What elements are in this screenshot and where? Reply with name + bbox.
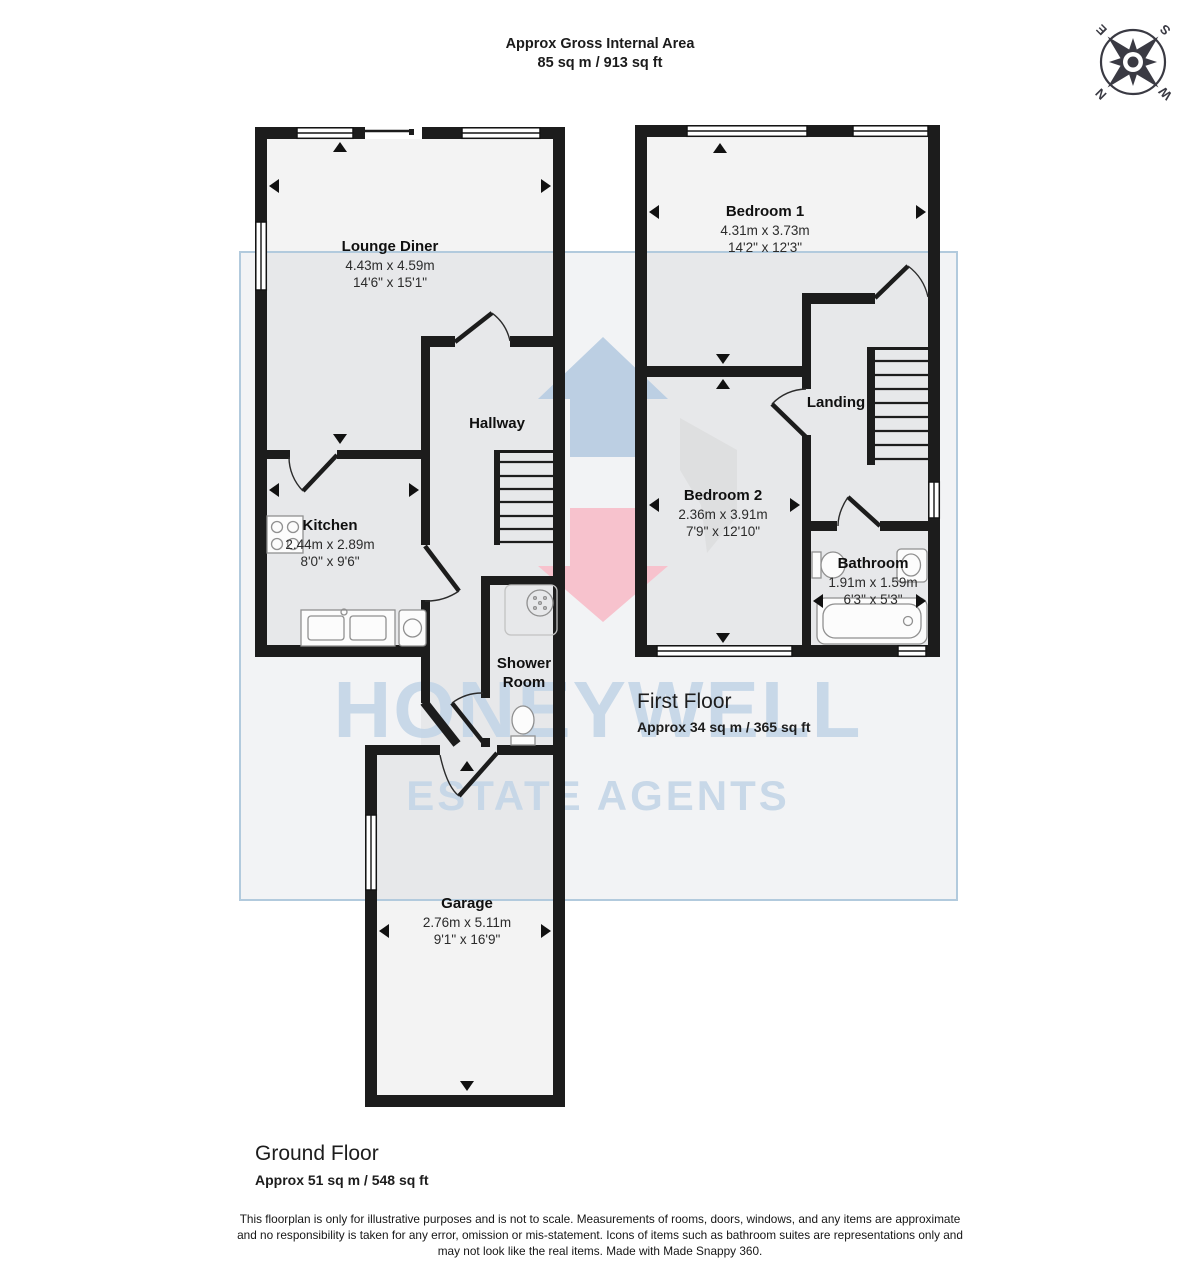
room-label-lounge: Lounge Diner 4.43m x 4.59m 14'6" x 15'1" — [342, 238, 439, 291]
room-label-shower: Shower Room — [482, 655, 566, 693]
compass-n: N — [1092, 86, 1109, 103]
room-name: Bathroom — [828, 555, 917, 574]
room-dim-imperial: 9'1" x 16'9" — [423, 931, 511, 948]
room-name: Hallway — [469, 415, 525, 434]
room-dim-metric: 2.36m x 3.91m — [678, 506, 767, 523]
room-dim-metric: 1.91m x 1.59m — [828, 574, 917, 591]
room-name: Bedroom 2 — [678, 487, 767, 506]
page-title: Approx Gross Internal Area — [506, 36, 695, 52]
compass-e: E — [1093, 21, 1110, 38]
ground-floor-title: Ground Floor — [255, 1142, 379, 1166]
disclaimer-line: and no responsibility is taken for any e… — [237, 1228, 963, 1242]
room-name: Shower Room — [482, 655, 566, 693]
room-label-kitchen: Kitchen 2.44m x 2.89m 8'0" x 9'6" — [285, 517, 374, 570]
room-label-bathroom: Bathroom 1.91m x 1.59m 6'3" x 5'3" — [828, 555, 917, 608]
first-floor-title: First Floor — [637, 690, 732, 714]
disclaimer-line: may not look like the real items. Made w… — [438, 1244, 763, 1258]
watermark-line2: ESTATE AGENTS — [406, 772, 790, 819]
room-dim-imperial: 14'6" x 15'1" — [342, 274, 439, 291]
compass-s: S — [1157, 21, 1174, 38]
compass-w: W — [1155, 83, 1175, 103]
room-label-bedroom1: Bedroom 1 4.31m x 3.73m 14'2" x 12'3" — [720, 203, 809, 256]
ground-floor-area: Approx 51 sq m / 548 sq ft — [255, 1172, 429, 1188]
room-label-garage: Garage 2.76m x 5.11m 9'1" x 16'9" — [423, 895, 511, 948]
room-dim-imperial: 7'9" x 12'10" — [678, 523, 767, 540]
watermark-text: HONEYWELL ESTATE AGENTS — [333, 665, 862, 819]
room-dim-metric: 2.76m x 5.11m — [423, 914, 511, 931]
room-label-landing: Landing — [807, 394, 865, 413]
room-name: Lounge Diner — [342, 238, 439, 257]
room-dim-imperial: 6'3" x 5'3" — [828, 591, 917, 608]
room-dim-metric: 4.43m x 4.59m — [342, 257, 439, 274]
room-label-hallway: Hallway — [469, 415, 525, 434]
gross-area-value: 85 sq m / 913 sq ft — [538, 55, 663, 71]
room-dim-imperial: 14'2" x 12'3" — [720, 239, 809, 256]
compass-rose: N E S W — [1060, 0, 1201, 136]
toilet-cistern-icon — [812, 552, 821, 578]
toilet-icon — [512, 706, 534, 734]
watermark-line1: HONEYWELL — [333, 665, 862, 754]
first-floor-area: Approx 34 sq m / 365 sq ft — [637, 719, 811, 735]
disclaimer-line: This floorplan is only for illustrative … — [240, 1212, 961, 1226]
room-name: Bedroom 1 — [720, 203, 809, 222]
room-dim-metric: 2.44m x 2.89m — [285, 536, 374, 553]
room-name: Garage — [423, 895, 511, 914]
room-name: Kitchen — [285, 517, 374, 536]
floorplan-drawing: HONEYWELL ESTATE AGENTS — [0, 0, 1201, 1280]
patio-door-handle — [409, 129, 414, 135]
room-name: Landing — [807, 394, 865, 413]
room-dim-imperial: 8'0" x 9'6" — [285, 553, 374, 570]
room-label-bedroom2: Bedroom 2 2.36m x 3.91m 7'9" x 12'10" — [678, 487, 767, 540]
floorplan-page: HONEYWELL ESTATE AGENTS — [0, 0, 1201, 1280]
room-dim-metric: 4.31m x 3.73m — [720, 222, 809, 239]
